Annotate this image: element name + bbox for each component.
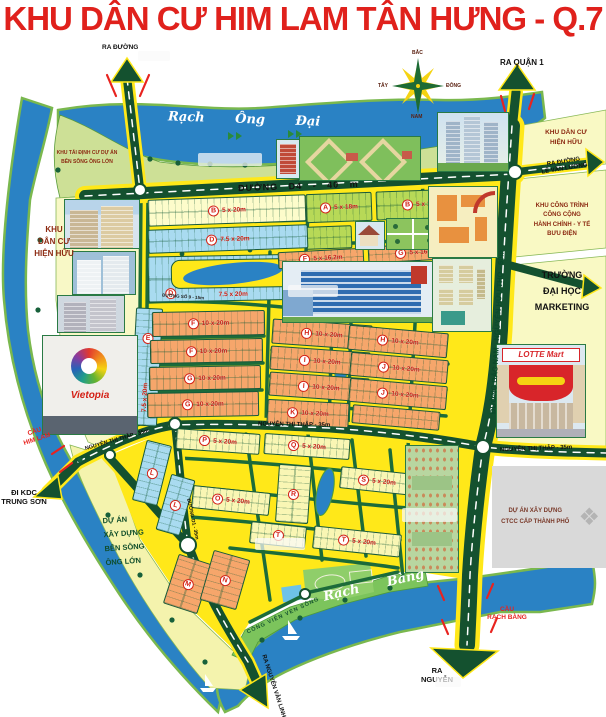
block-letter-badge: I	[298, 380, 310, 392]
photo-vietopia: Vietopia	[42, 335, 138, 435]
block-letter-badge: O	[212, 493, 224, 505]
block-P: P5 x 20m	[175, 428, 260, 455]
label-tai-dinh-cu: KHU TÁI ĐỊNH CƯ DỰ ÁN BÊN SÔNG ÔNG LỚN	[52, 149, 122, 166]
compass-rose: BẮC NAM TÂY ĐÔNG	[388, 54, 448, 118]
block-O: O5 x 20m	[191, 485, 271, 516]
block-lot-size: 5 x 20m	[352, 538, 376, 547]
block-letter-badge: B	[208, 205, 219, 216]
blur-patch	[435, 677, 461, 687]
block-R: R	[275, 464, 312, 524]
block-letter-badge: L	[169, 498, 183, 512]
block-F: F10 x 20m	[152, 310, 265, 337]
label-du-an-ben-song: DỰ ÁN XÂY DỰNG BÊN SÔNG ÔNG LỚN	[102, 510, 170, 570]
block-letter-badge: P	[199, 435, 211, 447]
block-B: B5 x 20m	[148, 194, 307, 226]
block-T: T5 x 20m	[312, 525, 402, 557]
block-lot-size: 5 x 20m	[213, 438, 237, 447]
block-letter-badge: R	[288, 488, 300, 500]
photo-apartments-3	[57, 295, 125, 333]
block-lot-size: 10 x 20m	[315, 331, 343, 340]
block-letter-badge: H	[377, 334, 389, 346]
block-G: G10 x 20m	[149, 365, 261, 391]
block-letter-badge: J	[378, 361, 390, 373]
block-letter-badge: S	[358, 474, 370, 486]
block-lot-size: 10 x 20m	[313, 357, 341, 366]
block-N: N	[200, 550, 251, 610]
label-di-kdc-trung-son: ĐI KDC TRUNG SƠN	[0, 488, 48, 506]
ctcc-logo-icon: ❖	[578, 503, 600, 532]
block-letter-badge: D	[206, 234, 217, 245]
lotte-label: LOTTE Mart	[502, 350, 580, 360]
block-F: F10 x 20m	[150, 338, 263, 364]
label-truong-marketing: TRƯỜNG ĐẠI HỌC MARKETING	[524, 268, 600, 315]
blur-patch	[288, 285, 338, 297]
block-lot-size: 10 x 20m	[202, 320, 230, 327]
photo-school-render	[432, 258, 492, 332]
blur-patch	[198, 153, 262, 166]
block-letter-badge: H	[301, 328, 313, 340]
photo-park-render	[299, 136, 421, 181]
compass-west: TÂY	[378, 83, 388, 89]
block-letter-badge: F	[186, 346, 197, 357]
block-lot-size: 10 x 20m	[391, 337, 419, 346]
block-letter-badge: A	[320, 202, 331, 213]
block-S: S5 x 20m	[339, 466, 415, 496]
block-lot-size: 5 x 20m	[226, 497, 250, 506]
photo-congtrinh-plan	[428, 186, 498, 258]
compass-south: NAM	[411, 114, 422, 120]
ctcc-project-area: DỰ ÁN XÂY DỰNG CTCC CẤP THÀNH PHỐ ❖	[492, 466, 606, 568]
label-ra-duong-topleft: RA ĐƯỜNG	[102, 44, 138, 52]
label-cau-rach-bang: CẦU RẠCH BÀNG	[482, 606, 532, 622]
central-lake	[182, 258, 284, 289]
block-letter-badge: F	[188, 318, 199, 329]
block-letter-badge: I	[299, 354, 311, 366]
block-lot-size: 5 x 20m	[222, 206, 246, 214]
photo-red-building	[276, 139, 300, 179]
compass-north: BẮC	[412, 50, 423, 56]
label-cong-trinh: KHU CÔNG TRÌNH CÔNG CỘNG HÀNH CHÍNH - Y …	[522, 202, 602, 239]
label-hien-huu-topright: KHU DÂN CƯ HIỆN HỮU	[534, 128, 598, 149]
block-letter-badge: N	[218, 573, 232, 587]
block-G: G10 x 20m	[147, 391, 259, 418]
photo-house-small	[355, 221, 385, 250]
ctcc-label: DỰ ÁN XÂY DỰNG CTCC CẤP THÀNH PHỐ	[492, 506, 578, 528]
house-roof	[358, 225, 380, 235]
block-letter-badge: M	[181, 577, 195, 591]
block-letter-badge: K	[287, 407, 299, 419]
block-lot-size: 5 x 18m	[334, 203, 358, 211]
block-D: D7.5 x 20m	[148, 224, 309, 254]
block-lot-size: 10 x 20m	[391, 390, 419, 399]
block-A: A5 x 18m	[306, 192, 373, 223]
block-letter-badge: L	[145, 466, 158, 479]
block-lot-size: 10 x 20m	[196, 401, 224, 408]
block-lot-size: 10 x 20m	[312, 383, 340, 392]
map-title: KHU DÂN CƯ HIM LAM TÂN HƯNG - Q.7	[0, 0, 606, 38]
block-letter-badge: G	[184, 373, 195, 384]
label-ntt-mid: NGUYỄN THỊ THẬP - 35m	[258, 421, 330, 429]
block-letter-badge: G	[182, 399, 193, 410]
block-letter-badge: B	[402, 199, 413, 210]
block-Q: Q5 x 20m	[263, 433, 350, 460]
block-letter-badge: J	[377, 387, 389, 399]
block-lot	[306, 225, 353, 250]
photo-lotte-mart: LOTTE Mart	[496, 344, 586, 438]
block-lot-size: 10 x 20m	[301, 410, 329, 418]
vietopia-label: Vietopia	[43, 390, 137, 402]
blur-patch	[255, 538, 305, 550]
label-ra-quan1: RA QUẬN 1	[500, 58, 544, 68]
photo-towers-top	[437, 112, 509, 172]
label-hien-huu-left: KHU DÂN CƯ HIỆN HỮU	[18, 224, 90, 260]
block-lot-size: 10 x 20m	[200, 347, 228, 354]
lake-ring	[170, 258, 295, 289]
block-letter-badge: T	[338, 534, 350, 546]
blur-patch	[138, 51, 170, 61]
block-lot-size: 5 x 20m	[372, 477, 396, 486]
compass-east: ĐÔNG	[446, 83, 461, 89]
map-canvas: KHU DÂN CƯ HIM LAM TÂN HƯNG - Q.7 B5 x 2…	[0, 0, 606, 717]
block-letter-badge: Q	[288, 440, 300, 452]
block-lot-size: 7.5 x 20m	[220, 235, 250, 243]
blur-patch	[402, 508, 457, 522]
block-lot-size: 7.5 x 20m	[219, 291, 248, 299]
block-lot-size: 10 x 20m	[198, 374, 226, 381]
block-lot-size: 10 x 20m	[392, 364, 420, 373]
block-lot-size: 5 x 20m	[302, 443, 326, 452]
